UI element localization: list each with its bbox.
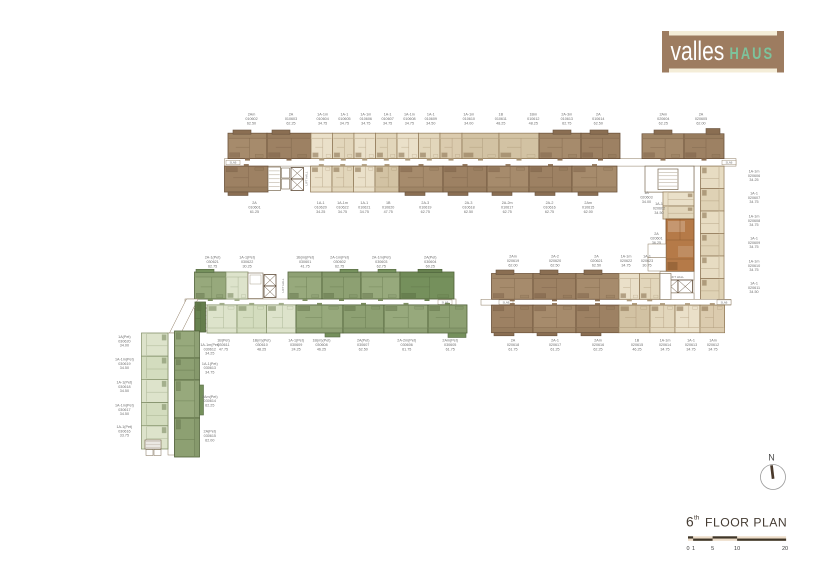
svg-text:1A-102061134.50: 1A-102061134.50 <box>748 281 760 294</box>
svg-text:2Am02061662.25: 2Am02061662.25 <box>592 339 604 352</box>
svg-text:1A-101060534.75: 1A-101060534.75 <box>338 113 350 126</box>
svg-text:th: th <box>694 515 700 522</box>
svg-text:SLAB: SLAB <box>230 161 237 165</box>
svg-text:1A-1m(Pet)03061234.25: 1A-1m(Pet)03061234.25 <box>200 343 219 356</box>
svg-text:2A-2m(Pet)03060661.75: 2A-2m(Pet)03060661.75 <box>397 339 416 352</box>
svg-text:1B(m)(Pet)03060141.75: 1B(m)(Pet)03060141.75 <box>296 256 314 269</box>
svg-text:2A-3m01061362.75: 2A-3m01061362.75 <box>561 113 573 126</box>
svg-text:1A-102060734.75: 1A-102060734.75 <box>748 191 760 204</box>
svg-text:2A-102061761.25: 2A-102061761.25 <box>549 339 561 352</box>
svg-text:HAUS: HAUS <box>730 46 775 64</box>
svg-text:2A01060161.25: 2A01060161.25 <box>248 201 260 214</box>
svg-text:SLAB: SLAB <box>503 300 510 304</box>
svg-text:2Am01061562.00: 2Am01061562.00 <box>582 201 594 214</box>
svg-text:10: 10 <box>734 546 740 552</box>
svg-text:1A-1m(Pet)03061734.50: 1A-1m(Pet)03061734.50 <box>115 403 134 416</box>
svg-text:LIFT HALL: LIFT HALL <box>281 278 285 292</box>
svg-text:SLAB: SLAB <box>726 161 733 165</box>
svg-text:FLOOR PLAN: FLOOR PLAN <box>705 516 787 530</box>
svg-text:1A02060334.00: 1A02060334.00 <box>640 191 652 204</box>
svg-text:6: 6 <box>686 515 694 530</box>
svg-text:1A-1m01060434.75: 1A-1m01060434.75 <box>316 113 328 126</box>
svg-text:1A-1m02060634.25: 1A-1m02060634.25 <box>748 169 760 182</box>
svg-text:2A01061462.50: 2A01061462.50 <box>592 113 604 126</box>
svg-text:1A-1m02060834.75: 1A-1m02060834.75 <box>748 214 760 227</box>
svg-text:1A-101062134.75: 1A-101062134.75 <box>358 201 370 214</box>
svg-text:2A02060562.00: 2A02060562.00 <box>695 113 707 126</box>
svg-text:2A(Pet)03060762.50: 2A(Pet)03060762.50 <box>357 339 370 352</box>
svg-text:1B01061148.25: 1B01061148.25 <box>495 113 507 126</box>
svg-text:2A-301061962.75: 2A-301061962.75 <box>419 201 431 214</box>
svg-text:1Am02061234.75: 1Am02061234.75 <box>707 339 719 352</box>
svg-text:2A02060136.25: 2A02060136.25 <box>650 232 662 245</box>
svg-text:2A-202062062.50: 2A-202062062.50 <box>549 255 561 268</box>
svg-text:1A-1m02061434.75: 1A-1m02061434.75 <box>659 339 671 352</box>
svg-text:20: 20 <box>782 546 788 552</box>
svg-text:2A-301061862.50: 2A-301061862.50 <box>462 201 474 214</box>
svg-text:1B(m)(Pet)03060846.25: 1B(m)(Pet)03060846.25 <box>312 339 330 352</box>
svg-text:1A-101060734.75: 1A-101060734.75 <box>381 113 393 126</box>
svg-text:2A01060362.25: 2A01060362.25 <box>285 113 297 126</box>
svg-text:2Am(Pet)03061462.25: 2Am(Pet)03061462.25 <box>202 395 218 408</box>
svg-text:1A-1(Pet)03061633.75: 1A-1(Pet)03061633.75 <box>117 425 133 438</box>
svg-text:2A-2m01061762.75: 2A-2m01061762.75 <box>501 201 513 214</box>
svg-text:2A-1(Pet)03062162.75: 2A-1(Pet)03062162.75 <box>205 256 221 269</box>
svg-text:1A-1(Pet)03061334.75: 1A-1(Pet)03061334.75 <box>202 362 218 375</box>
svg-text:1A-1m02061034.75: 1A-1m02061034.75 <box>748 259 760 272</box>
svg-text:0: 0 <box>686 546 689 552</box>
svg-text:valles: valles <box>671 37 725 67</box>
svg-text:2A-1m(Pet)03060362.75: 2A-1m(Pet)03060362.75 <box>372 256 391 269</box>
svg-text:1A-1m02062234.75: 1A-1m02062234.75 <box>620 255 632 268</box>
svg-text:1A-1(Pet)03060924.25: 1A-1(Pet)03060924.25 <box>288 339 304 352</box>
svg-text:1A-1(Pet)03061834.50: 1A-1(Pet)03061834.50 <box>117 380 133 393</box>
svg-text:2A02061861.75: 2A02061861.75 <box>507 339 519 352</box>
svg-text:1B(m)(Pet)03061048.25: 1B(m)(Pet)03061048.25 <box>253 339 271 352</box>
svg-text:2A02062162.50: 2A02062162.50 <box>590 255 602 268</box>
svg-text:1Bm01061248.25: 1Bm01061248.25 <box>527 113 539 126</box>
svg-text:1: 1 <box>692 546 695 552</box>
svg-text:2Am01060262.50: 2Am01060262.50 <box>245 113 257 126</box>
svg-text:2Am02060462.25: 2Am02060462.25 <box>657 113 669 126</box>
svg-text:1A(Pet)03062034.00: 1A(Pet)03062034.00 <box>118 335 131 348</box>
svg-text:2A-201061662.75: 2A-201061662.75 <box>543 201 555 214</box>
svg-text:2Am(Pet)03060561.75: 2Am(Pet)03060561.75 <box>442 339 458 352</box>
svg-text:1A-1m01060834.75: 1A-1m01060834.75 <box>403 113 415 126</box>
svg-text:N: N <box>768 453 775 463</box>
svg-text:SLAB: SLAB <box>721 300 728 304</box>
svg-text:2Am02061962.00: 2Am02061962.00 <box>507 255 519 268</box>
svg-text:LIFT HALL: LIFT HALL <box>305 171 309 185</box>
svg-text:2A-1m(Pet)03060262.75: 2A-1m(Pet)03060262.75 <box>330 256 349 269</box>
svg-text:1A-1m01062234.75: 1A-1m01062234.75 <box>336 201 348 214</box>
svg-text:5: 5 <box>711 546 714 552</box>
svg-text:1B01062047.75: 1B01062047.75 <box>382 201 394 214</box>
svg-text:1B02061546.25: 1B02061546.25 <box>631 339 643 352</box>
svg-text:1A-102060934.75: 1A-102060934.75 <box>748 236 760 249</box>
svg-text:1A-1m01061034.00: 1A-1m01061034.00 <box>463 113 475 126</box>
svg-text:1A-1m(Pet)03061934.50: 1A-1m(Pet)03061934.50 <box>115 357 134 370</box>
svg-text:1A-1m01060634.75: 1A-1m01060634.75 <box>360 113 372 126</box>
svg-text:1A-101062034.25: 1A-101062034.25 <box>315 201 327 214</box>
svg-text:LIFT HALL: LIFT HALL <box>670 275 684 279</box>
svg-text:1A-102061334.75: 1A-102061334.75 <box>685 339 697 352</box>
svg-text:1A-101060934.50: 1A-101060934.50 <box>425 113 437 126</box>
svg-text:2A(Pet)03060460.25: 2A(Pet)03060460.25 <box>424 256 437 269</box>
svg-text:2A(Pet)03061562.00: 2A(Pet)03061562.00 <box>204 430 217 443</box>
svg-text:1A-1(Pet)03062230.25: 1A-1(Pet)03062230.25 <box>239 256 255 269</box>
